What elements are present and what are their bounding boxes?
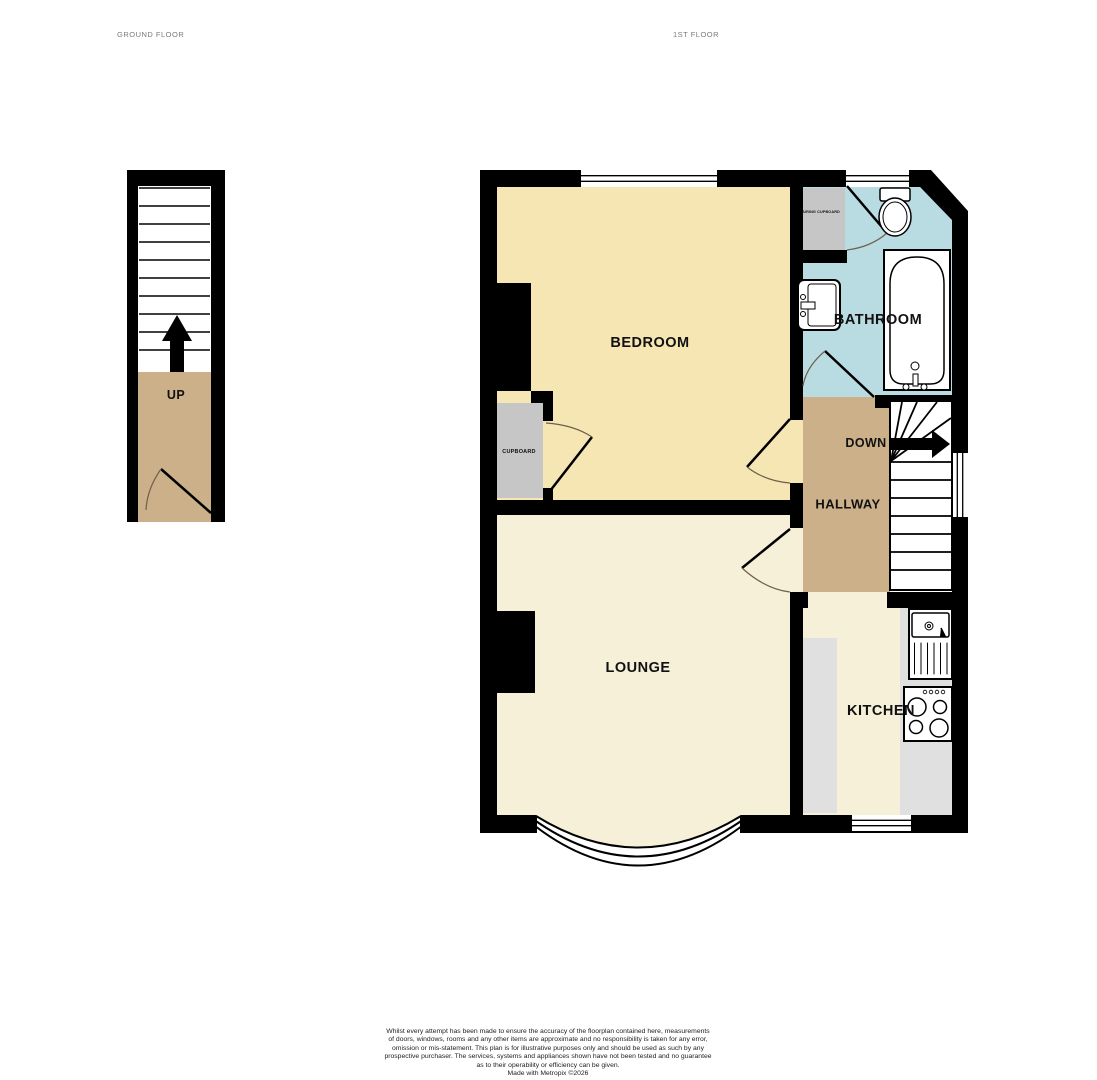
room-label-lounge: LOUNGE — [605, 660, 670, 676]
hallway-floor — [803, 397, 890, 592]
stairs-window — [952, 453, 968, 517]
kitchen-counter-left — [803, 638, 837, 813]
floorplan-drawing — [0, 0, 1097, 1080]
room-label-airing-cupboard: AIRING CUPBOARD — [802, 210, 840, 214]
lounge-floor — [497, 500, 790, 815]
room-label-hallway: HALLWAY — [815, 497, 880, 512]
floor-title-ground: GROUND FLOOR — [117, 30, 184, 39]
stairs-label-down: DOWN — [845, 436, 886, 450]
toilet — [879, 188, 911, 236]
kitchen-sink — [909, 609, 952, 679]
chimney-breast-lounge — [492, 611, 535, 693]
bedroom-window — [581, 170, 717, 187]
chimney-breast-bedroom — [492, 283, 531, 391]
bedroom-door-gap — [790, 420, 803, 483]
room-label-cupboard: CUPBOARD — [502, 449, 535, 455]
metropix-credit: Made with Metropix ©2026 — [343, 1070, 753, 1078]
floor-title-first: 1ST FLOOR — [673, 30, 719, 39]
disclaimer-line: Whilst every attempt has been made to en… — [343, 1028, 753, 1036]
stairs-label-up: UP — [167, 388, 185, 402]
first-floor-plan — [480, 170, 968, 866]
disclaimer: Whilst every attempt has been made to en… — [343, 1028, 753, 1079]
staircase-down — [890, 401, 952, 590]
disclaimer-line: omission or mis-statement. This plan is … — [343, 1045, 753, 1053]
airing-cupboard-floor — [803, 188, 845, 250]
floorplan-page: GROUND FLOOR 1ST FLOOR BEDROOM BATHROOM … — [0, 0, 1097, 1080]
bathroom-window — [846, 170, 909, 187]
room-label-bathroom: BATHROOM — [834, 312, 922, 328]
kitchen-window — [852, 815, 911, 831]
ground-floor-plan — [127, 170, 225, 522]
disclaimer-line: prospective purchaser. The services, sys… — [343, 1053, 753, 1061]
room-label-bedroom: BEDROOM — [610, 335, 689, 351]
room-label-kitchen: KITCHEN — [847, 703, 915, 719]
bay-window — [530, 815, 747, 866]
lounge-door-gap — [790, 528, 803, 592]
disclaimer-line: of doors, windows, rooms and any other i… — [343, 1036, 753, 1044]
